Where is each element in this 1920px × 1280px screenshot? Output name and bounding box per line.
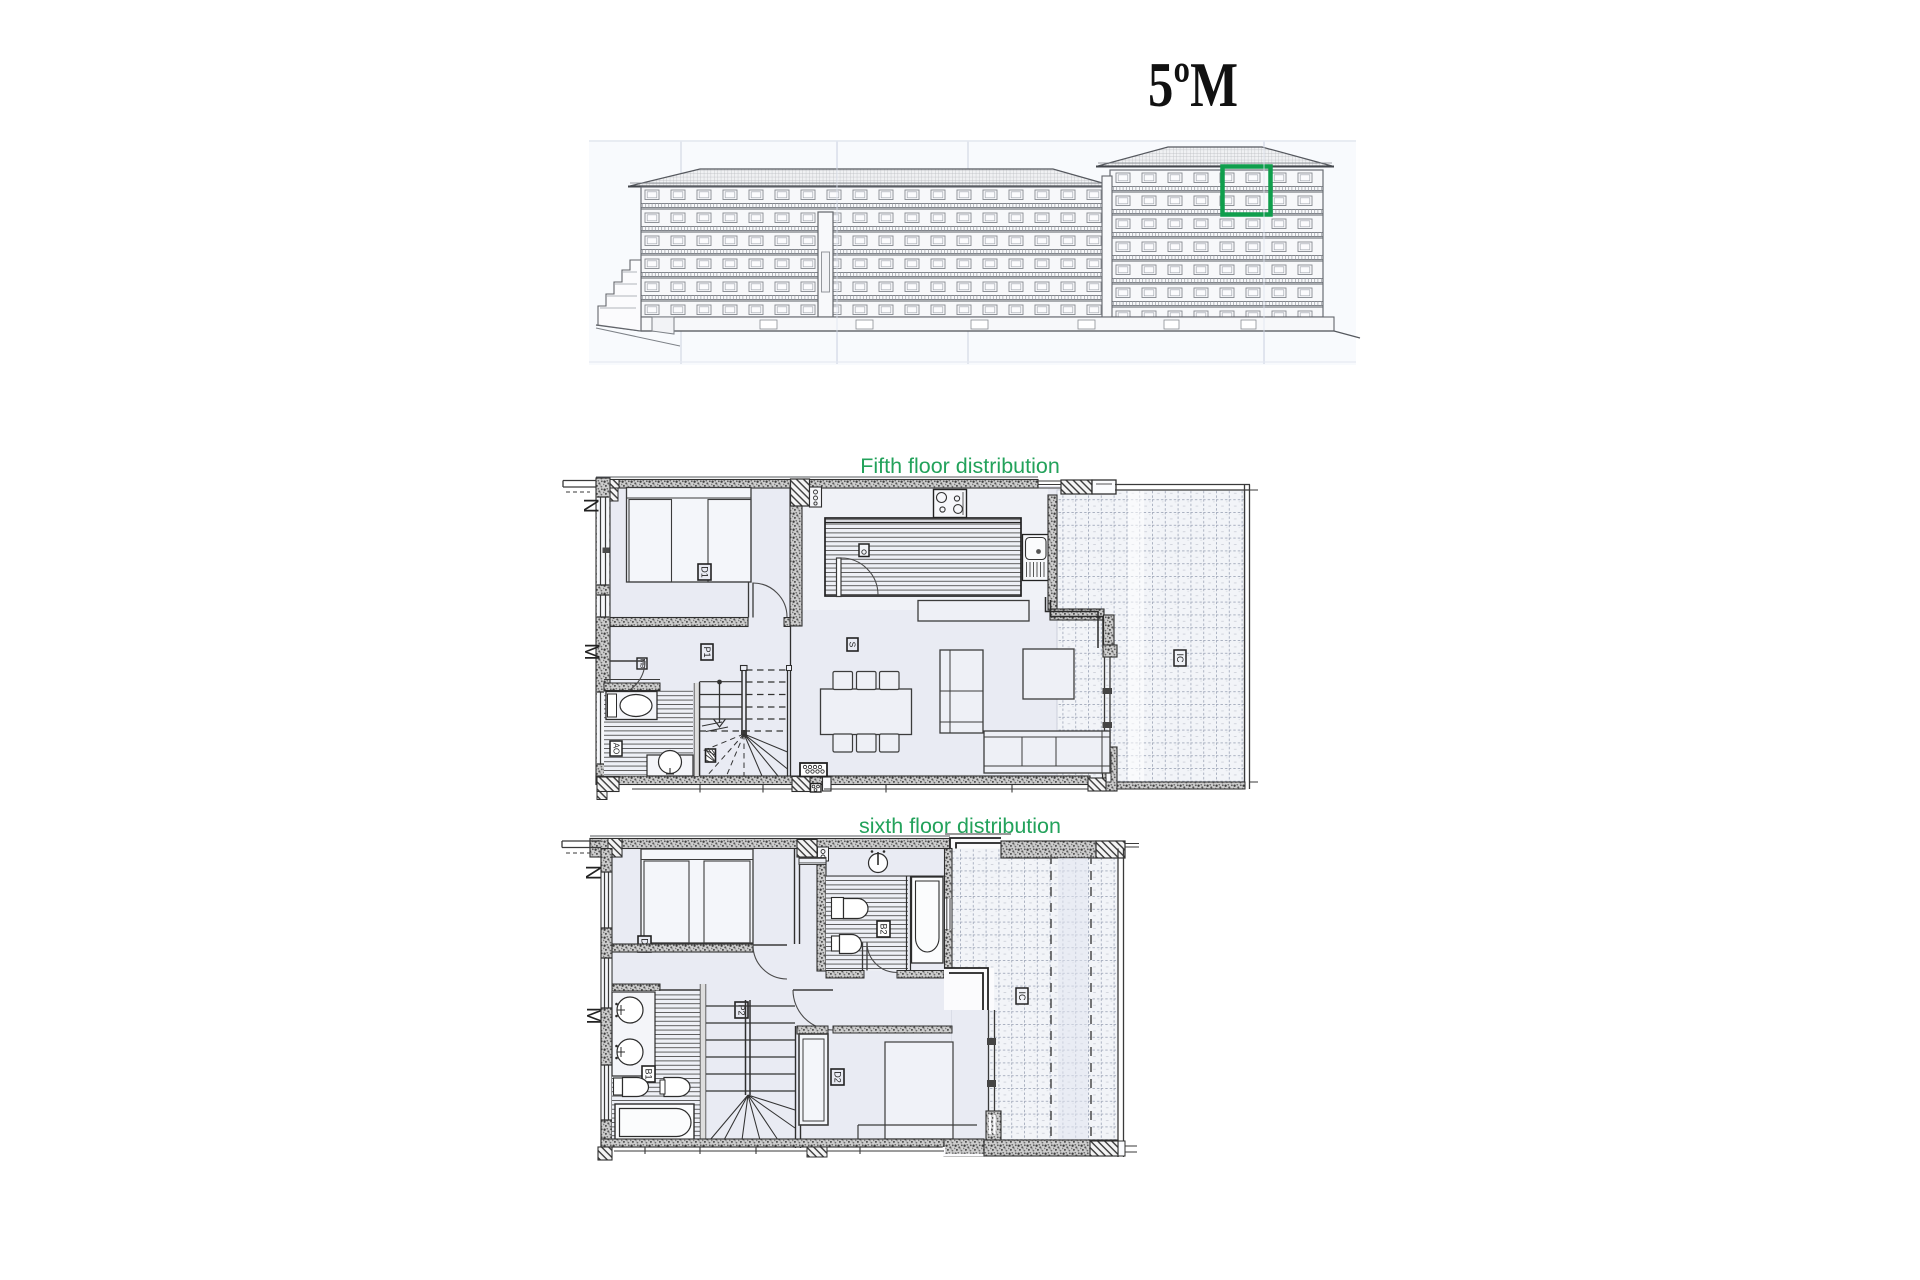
svg-text:AO: AO [612, 743, 621, 755]
svg-text:B2: B2 [879, 923, 889, 934]
svg-text:P1: P1 [702, 646, 712, 657]
svg-text:IC: IC [1017, 992, 1027, 1002]
svg-text:D2: D2 [833, 1071, 843, 1083]
svg-text:N: N [579, 498, 602, 513]
svg-text:Fifth floor distribution: Fifth floor distribution [860, 454, 1060, 478]
svg-text:D1: D1 [700, 566, 710, 578]
svg-text:5ºM: 5ºM [1148, 49, 1238, 120]
svg-text:B1: B1 [644, 1068, 654, 1079]
svg-text:S: S [848, 642, 858, 648]
svg-text:IC: IC [1175, 654, 1185, 664]
svg-text:M: M [580, 643, 603, 661]
